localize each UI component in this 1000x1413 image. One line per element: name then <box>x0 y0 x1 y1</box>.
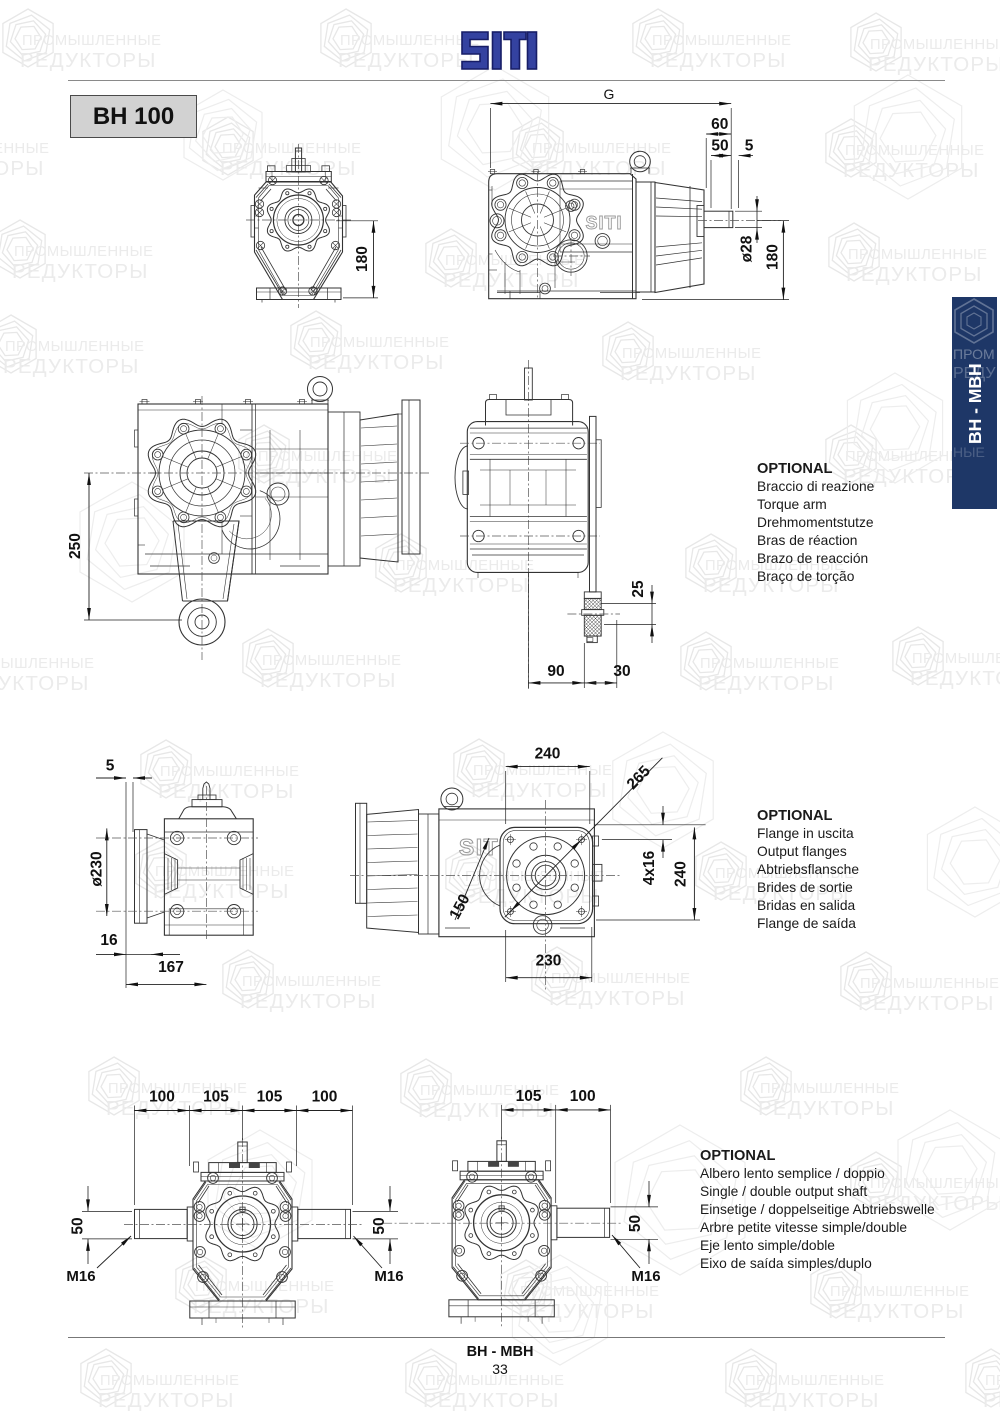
svg-text:BH - MBH: BH - MBH <box>965 363 985 444</box>
svg-text:230: 230 <box>536 953 562 970</box>
svg-text:ПРОМ: ПРОМ <box>953 346 995 362</box>
svg-text:ø230: ø230 <box>89 851 106 886</box>
svg-text:M16: M16 <box>631 1268 660 1285</box>
svg-text:G: G <box>604 86 615 102</box>
svg-text:25: 25 <box>630 580 647 598</box>
svg-text:SITI: SITI <box>585 213 622 233</box>
svg-text:4x16: 4x16 <box>641 850 658 885</box>
svg-text:265: 265 <box>624 762 655 793</box>
svg-text:60: 60 <box>711 116 728 133</box>
svg-text:SIT: SIT <box>459 834 499 860</box>
svg-text:5: 5 <box>745 138 754 155</box>
svg-text:180: 180 <box>354 246 371 272</box>
svg-text:105: 105 <box>203 1089 229 1106</box>
svg-text:167: 167 <box>158 959 184 976</box>
svg-text:50: 50 <box>711 138 728 155</box>
svg-text:30: 30 <box>613 663 630 680</box>
svg-text:90: 90 <box>547 663 564 680</box>
svg-text:НЫЕ: НЫЕ <box>953 444 985 460</box>
svg-text:100: 100 <box>149 1089 175 1106</box>
svg-text:50: 50 <box>70 1217 87 1234</box>
svg-text:240: 240 <box>535 746 561 763</box>
svg-text:50: 50 <box>371 1217 388 1234</box>
svg-text:100: 100 <box>312 1089 338 1106</box>
svg-text:105: 105 <box>257 1089 283 1106</box>
svg-text:M16: M16 <box>66 1268 95 1285</box>
svg-text:16: 16 <box>100 932 118 949</box>
svg-text:5: 5 <box>106 758 115 775</box>
svg-text:240: 240 <box>673 861 690 887</box>
svg-text:180: 180 <box>765 244 782 270</box>
svg-text:50: 50 <box>627 1215 644 1232</box>
svg-text:M16: M16 <box>374 1268 403 1285</box>
svg-text:150: 150 <box>446 891 473 922</box>
svg-text:ø28: ø28 <box>739 235 756 262</box>
svg-text:250: 250 <box>67 533 84 559</box>
svg-text:100: 100 <box>570 1088 596 1105</box>
svg-text:105: 105 <box>516 1088 542 1105</box>
